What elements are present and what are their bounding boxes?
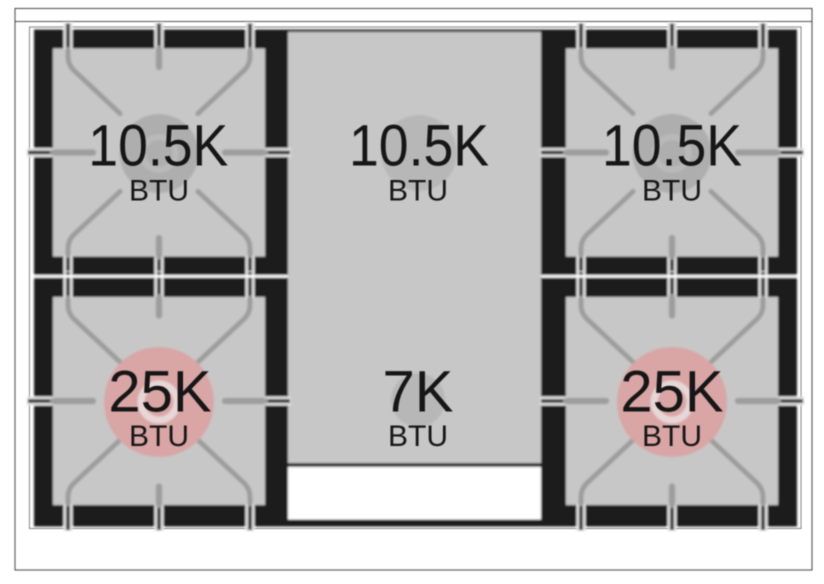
svg-text:BTU: BTU [642,175,702,208]
svg-text:BTU: BTU [129,175,189,208]
svg-text:BTU: BTU [642,420,702,453]
svg-text:BTU: BTU [388,175,448,208]
svg-text:10.5K: 10.5K [349,114,489,179]
svg-text:25K: 25K [108,360,212,425]
svg-text:7K: 7K [383,360,454,425]
svg-text:BTU: BTU [129,420,189,453]
svg-text:10.5K: 10.5K [88,114,228,179]
svg-text:25K: 25K [620,360,724,425]
svg-text:BTU: BTU [388,420,448,453]
svg-text:10.5K: 10.5K [602,114,742,179]
